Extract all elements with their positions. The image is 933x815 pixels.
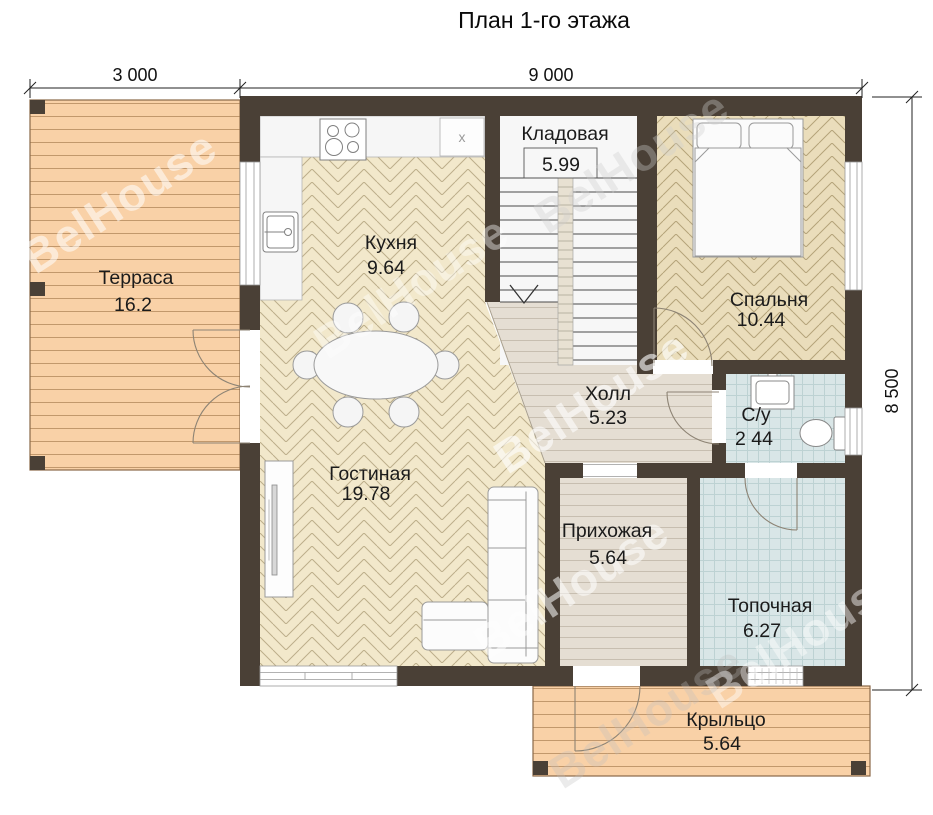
wall-bottom [397, 666, 573, 686]
boiler-room-area: 6.27 [743, 620, 781, 642]
porch-area: 5.64 [703, 733, 741, 755]
bedroom-name: Спальня [730, 289, 808, 311]
wall-right [845, 290, 862, 408]
living-room-name: Гостиная [329, 463, 411, 485]
wall-right [845, 96, 862, 162]
dim-terrace-width: 3 000 [112, 65, 157, 85]
hall-area: 5.23 [589, 407, 627, 429]
kitchen-area: 9.64 [367, 257, 405, 279]
wall-hall-entry [637, 463, 745, 478]
terrace-area: 16.2 [114, 294, 152, 316]
wall-top [240, 96, 862, 116]
page-title: План 1-го этажа [458, 7, 630, 33]
porch-name: Крыльцо [686, 709, 766, 731]
terrace-post [30, 100, 45, 114]
boiler-room-name: Топочная [728, 595, 813, 617]
bathroom-door-gap [712, 390, 726, 443]
wall-left [240, 96, 260, 162]
bathroom-name: С/у [741, 404, 771, 426]
boiler-door-gap [745, 463, 797, 478]
bedroom-window [845, 162, 862, 290]
kitchen-sink-icon [263, 212, 298, 252]
wall-bathroom-left [712, 443, 726, 463]
floor-plan-page: x [0, 0, 933, 815]
dim-house-depth: 8 500 [882, 368, 902, 413]
hall-name: Холл [585, 383, 631, 405]
hall-entry-opening [583, 463, 637, 478]
wall-bathroom-left [712, 374, 726, 390]
terrace-post [30, 282, 45, 296]
wall-hall-entry [545, 463, 583, 478]
kitchen-name: Кухня [365, 232, 417, 254]
bathroom-area: 2 44 [735, 428, 773, 450]
wall-entry-boiler [687, 478, 700, 666]
terrace-name: Терраса [99, 267, 174, 289]
porch-post [851, 761, 866, 775]
living-window [260, 666, 397, 686]
entry-name: Прихожая [562, 520, 652, 542]
storage-area: 5.99 [542, 154, 580, 176]
wall-left [240, 443, 260, 686]
appliance-mark: x [459, 129, 466, 145]
bathroom-window [845, 408, 862, 455]
tv-stand [265, 461, 293, 597]
wall-bedroom-bottom [713, 360, 845, 374]
living-room-area: 19.78 [342, 483, 391, 505]
stove [320, 119, 366, 160]
wall-hall-entry [797, 463, 845, 478]
bedroom-area: 10.44 [737, 309, 786, 331]
kitchen-window [240, 162, 260, 285]
wall-bottom [803, 666, 862, 686]
entry-area: 5.64 [589, 547, 627, 569]
terrace-post [30, 456, 45, 470]
dim-house-width: 9 000 [528, 65, 573, 85]
entry-door-gap [573, 666, 640, 686]
floor-plan-drawing: x [0, 0, 933, 815]
storage-name: Кладовая [521, 123, 608, 145]
wall-left [240, 285, 260, 330]
